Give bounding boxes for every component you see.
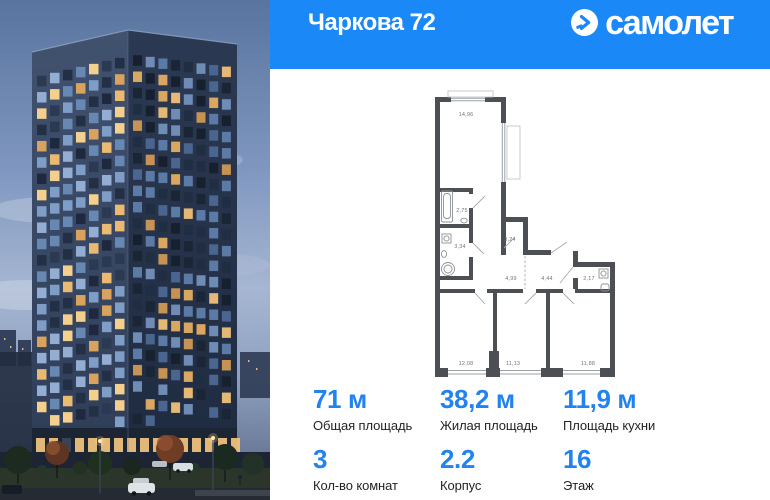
facade-window xyxy=(37,304,47,315)
facade-window xyxy=(133,120,142,131)
facade-window xyxy=(89,211,99,222)
facade-window xyxy=(37,320,47,331)
facade-window xyxy=(133,381,142,392)
card-header: Чаркова 72 самолет xyxy=(270,0,770,69)
facade-window xyxy=(50,171,60,182)
stat-living-area: 38,2 м Жилая площадь xyxy=(440,386,566,433)
facade-window xyxy=(158,368,167,379)
facade-window xyxy=(63,363,73,374)
facade-window xyxy=(115,74,125,85)
facade-window xyxy=(102,126,112,136)
building-photo-svg xyxy=(0,0,270,500)
facade-window xyxy=(115,417,125,428)
room-area-label: 4,44 xyxy=(541,276,553,282)
facade-window xyxy=(50,301,60,312)
facade-window xyxy=(133,316,142,327)
facade-window xyxy=(133,55,142,66)
facade-window xyxy=(76,328,86,339)
facade-window xyxy=(197,161,206,172)
facade-window xyxy=(158,270,167,281)
facade-window xyxy=(171,305,180,316)
facade-window xyxy=(63,200,73,211)
facade-window xyxy=(158,319,167,330)
facade-window xyxy=(102,322,112,333)
facade-window xyxy=(133,332,142,343)
facade-window xyxy=(50,105,60,116)
project-title: Чаркова 72 xyxy=(308,9,435,37)
facade-window xyxy=(50,366,60,377)
facade-window xyxy=(76,262,86,273)
facade-window xyxy=(115,172,125,183)
facade-window xyxy=(146,269,155,280)
facade-window xyxy=(184,339,193,350)
facade-window xyxy=(76,311,86,322)
facade-window xyxy=(209,407,218,418)
facade-window xyxy=(209,261,218,272)
facade-window xyxy=(76,83,86,94)
facade-window xyxy=(184,306,193,317)
facade-window xyxy=(209,309,218,320)
facade-window xyxy=(222,246,231,257)
facade-window xyxy=(50,73,60,84)
facade-window xyxy=(63,347,73,358)
facade-window xyxy=(209,293,218,304)
facade-window xyxy=(75,438,84,454)
stat-label: Кол-во комнат xyxy=(313,478,439,493)
facade-window xyxy=(76,148,86,159)
facade-window xyxy=(171,142,180,153)
facade-window xyxy=(76,116,86,127)
facade-window xyxy=(146,187,155,198)
facade-window xyxy=(50,187,60,198)
facade-window xyxy=(114,438,123,454)
facade-window xyxy=(222,360,231,371)
facade-window xyxy=(222,295,231,306)
facade-window xyxy=(184,62,193,73)
facade-window xyxy=(197,324,206,335)
facade-window xyxy=(197,96,206,107)
facade-window xyxy=(222,409,231,420)
facade-window xyxy=(102,354,112,365)
facade-window xyxy=(115,188,125,199)
facade-window xyxy=(158,58,167,69)
facade-window xyxy=(37,288,47,299)
facade-window xyxy=(222,67,231,78)
facade-window xyxy=(102,224,112,235)
facade-window xyxy=(50,415,60,426)
stat-label: Этаж xyxy=(563,478,689,493)
facade-window xyxy=(50,268,60,279)
facade-window xyxy=(192,438,201,454)
facade-window xyxy=(158,189,167,200)
facade-window xyxy=(63,298,73,309)
facade-window xyxy=(102,240,112,251)
facade-window xyxy=(171,93,180,104)
facade-window xyxy=(171,272,180,283)
facade-window xyxy=(76,377,86,388)
facade-window xyxy=(158,107,167,118)
facade-window xyxy=(133,300,142,311)
facade-window xyxy=(63,70,73,81)
facade-window xyxy=(197,194,206,205)
facade-window xyxy=(37,92,47,103)
facade-window xyxy=(171,321,180,332)
facade-window xyxy=(222,278,231,289)
facade-window xyxy=(50,285,60,296)
facade-window xyxy=(184,355,193,366)
balcony-outline xyxy=(448,91,493,97)
facade-window xyxy=(222,148,231,159)
facade-window xyxy=(102,208,112,219)
facade-window xyxy=(102,159,112,170)
facade-window xyxy=(146,106,155,117)
facade-window xyxy=(158,303,167,314)
room-area-label: 3,34 xyxy=(454,244,466,250)
facade-window xyxy=(158,352,167,363)
facade-window xyxy=(89,406,99,417)
facade-window xyxy=(158,238,167,249)
facade-window xyxy=(146,122,155,132)
facade-window xyxy=(115,205,125,216)
facade-window xyxy=(115,221,125,232)
facade-window xyxy=(63,102,73,113)
facade-window xyxy=(209,358,218,369)
facade-window xyxy=(115,91,125,102)
facade-window xyxy=(184,225,193,236)
facade-window xyxy=(184,323,193,334)
listing-card[interactable]: Чаркова 72 самолет xyxy=(0,0,770,500)
facade-window xyxy=(63,314,73,325)
facade-window xyxy=(222,311,231,322)
facade-window xyxy=(171,386,180,397)
facade-window xyxy=(222,164,231,175)
facade-window xyxy=(102,191,112,202)
facade-window xyxy=(37,255,47,266)
facade-window xyxy=(197,112,206,123)
facade-window xyxy=(37,402,47,413)
facade-window xyxy=(63,217,73,228)
room-area-label: 12,08 xyxy=(459,361,474,367)
facade-window xyxy=(50,138,60,149)
facade-window xyxy=(133,202,142,213)
facade-window xyxy=(146,57,155,68)
facade-window xyxy=(197,357,206,368)
facade-window xyxy=(115,139,125,150)
facade-window xyxy=(146,155,155,166)
room-area-label: 4,99 xyxy=(505,276,517,282)
facade-window xyxy=(50,252,60,263)
facade-window xyxy=(115,237,125,248)
facade-window xyxy=(146,89,155,100)
facade-window xyxy=(197,226,206,237)
facade-window xyxy=(171,60,180,71)
facade-window xyxy=(184,78,193,89)
facade-window xyxy=(63,249,73,260)
facade-window xyxy=(222,393,231,404)
facade-window xyxy=(115,351,125,362)
facade-window xyxy=(158,384,167,395)
facade-window xyxy=(115,384,125,395)
facade-window xyxy=(76,165,86,176)
stat-value: 16 xyxy=(563,446,689,473)
facade-window xyxy=(133,414,142,425)
facade-window xyxy=(146,285,155,296)
facade-window xyxy=(102,387,112,398)
stat-value: 38,2 м xyxy=(440,386,566,413)
facade-window xyxy=(209,391,218,402)
facade-window xyxy=(209,342,218,353)
facade-window xyxy=(115,270,125,281)
facade-window xyxy=(76,295,86,306)
facade-window xyxy=(50,89,60,100)
facade-window xyxy=(158,205,167,216)
facade-window xyxy=(222,262,231,273)
facade-window xyxy=(102,93,112,104)
facade-window xyxy=(89,194,99,205)
facade-window xyxy=(115,156,125,167)
facade-window xyxy=(146,367,155,378)
facade-window xyxy=(197,308,206,319)
facade-window xyxy=(133,218,142,229)
facade-window xyxy=(63,119,73,130)
facade-window xyxy=(209,146,218,157)
facade-window xyxy=(76,214,86,225)
facade-window xyxy=(50,350,60,361)
facade-window xyxy=(158,91,167,102)
facade-window xyxy=(37,239,47,250)
facade-window xyxy=(76,197,86,208)
stat-value: 71 м xyxy=(313,386,439,413)
facade-window xyxy=(184,404,193,415)
facade-window xyxy=(184,290,193,301)
facade-window xyxy=(89,292,99,303)
facade-window xyxy=(209,212,218,223)
facade-window xyxy=(184,111,193,122)
facade-window xyxy=(209,179,218,190)
facade-window xyxy=(37,76,47,87)
facade-window xyxy=(63,86,73,97)
facade-window xyxy=(146,138,155,149)
facade-window xyxy=(89,390,99,401)
room-area-label: 11,88 xyxy=(581,361,595,367)
facade-window xyxy=(184,94,193,105)
facade-window xyxy=(133,267,142,278)
facade-window xyxy=(146,350,155,361)
facade-window xyxy=(184,257,193,268)
facade-window xyxy=(63,282,73,293)
facade-window xyxy=(158,140,167,151)
facade-window xyxy=(133,72,142,83)
facade-window xyxy=(222,115,231,126)
facade-window xyxy=(133,349,142,360)
facade-window xyxy=(184,274,193,285)
facade-window xyxy=(171,174,180,185)
stat-value: 11,9 м xyxy=(563,386,689,413)
facade-window xyxy=(37,206,47,217)
facade-window xyxy=(171,109,180,120)
stat-value: 3 xyxy=(313,446,439,473)
stat-label: Жилая площадь xyxy=(440,418,566,433)
stat-rooms-count: 3 Кол-во комнат xyxy=(313,446,439,493)
facade-window xyxy=(102,110,112,121)
facade-window xyxy=(102,305,112,316)
tower xyxy=(32,30,240,462)
facade-window xyxy=(50,122,60,133)
facade-window xyxy=(184,160,193,171)
facade-window xyxy=(76,393,86,404)
facade-window xyxy=(37,337,47,348)
facade-window xyxy=(209,195,218,206)
facade-window xyxy=(89,129,99,140)
room-area-label: 11,13 xyxy=(506,361,520,367)
facade-window xyxy=(197,292,206,303)
facade-window xyxy=(89,178,99,189)
facade-window xyxy=(158,173,167,184)
facade-window xyxy=(158,124,167,135)
facade-window xyxy=(89,308,99,319)
facade-window xyxy=(115,302,125,313)
facade-window xyxy=(184,127,193,137)
facade-window xyxy=(209,130,218,141)
facade-window xyxy=(209,375,218,386)
facade-window xyxy=(171,190,180,201)
facade-window xyxy=(102,289,112,300)
facade-window xyxy=(89,80,99,91)
facade-window xyxy=(209,228,218,239)
facade-window xyxy=(222,230,231,241)
facade-window xyxy=(171,402,180,413)
floorplan-walls xyxy=(435,97,615,377)
facade-window xyxy=(63,168,73,179)
facade-window xyxy=(222,344,231,355)
facade-window xyxy=(146,399,155,410)
facade-window xyxy=(37,385,47,396)
facade-window xyxy=(197,80,206,91)
facade-window xyxy=(184,371,193,382)
facade-window xyxy=(158,75,167,86)
facade-window xyxy=(158,336,167,347)
stat-label: Площадь кухни xyxy=(563,418,689,433)
stat-building-number: 2.2 Корпус xyxy=(440,446,566,493)
facade-window xyxy=(102,338,112,349)
facade-window xyxy=(197,373,206,384)
facade-window xyxy=(140,438,149,454)
facade-window xyxy=(158,287,167,298)
facade-window xyxy=(171,256,180,267)
facade-window xyxy=(76,344,86,355)
facade-window xyxy=(37,174,47,185)
facade-window xyxy=(50,154,60,165)
facade-window xyxy=(36,438,45,454)
facade-window xyxy=(146,204,155,215)
brand-wordmark: самолет xyxy=(605,6,733,40)
facade-window xyxy=(133,153,142,164)
facade-window xyxy=(102,371,112,382)
facade-window xyxy=(89,243,99,254)
facade-window xyxy=(171,125,180,136)
facade-window xyxy=(50,334,60,345)
facade-window xyxy=(184,388,193,399)
facade-window xyxy=(102,77,112,88)
facade-window xyxy=(89,259,99,270)
facade-window xyxy=(197,210,206,221)
facade-window xyxy=(63,151,73,162)
facade-window xyxy=(222,376,231,387)
info-panel: Чаркова 72 самолет xyxy=(270,0,770,500)
balcony-outline xyxy=(507,126,520,179)
facade-window xyxy=(76,360,86,371)
facade-window xyxy=(197,259,206,270)
facade-window xyxy=(171,207,180,218)
facade-window xyxy=(209,326,218,337)
facade-window xyxy=(209,81,218,92)
facade-window xyxy=(146,220,155,231)
facade-window xyxy=(63,331,73,342)
facade-window xyxy=(115,368,125,379)
facade-window xyxy=(146,318,155,329)
facade-window xyxy=(197,275,206,286)
facade-window xyxy=(37,108,47,119)
facade-window xyxy=(184,192,193,203)
facade-window xyxy=(50,399,60,410)
facade-window xyxy=(197,177,206,188)
facade-window xyxy=(209,65,218,76)
facade-window xyxy=(146,236,155,247)
facade-window xyxy=(37,353,47,364)
room-area-label: 2,75 xyxy=(456,208,468,214)
facade-window xyxy=(115,335,125,346)
room-area-label: 3,24 xyxy=(504,237,516,243)
facade-window xyxy=(171,158,180,169)
stat-value: 2.2 xyxy=(440,446,566,473)
facade-window xyxy=(171,76,180,87)
facade-window xyxy=(209,98,218,109)
facade-window xyxy=(115,123,125,134)
facade-window xyxy=(222,132,231,143)
facade-window xyxy=(37,369,47,380)
facade-window xyxy=(197,63,206,74)
facade-window xyxy=(133,186,142,197)
facade-window xyxy=(133,88,142,99)
facade-window xyxy=(102,142,112,153)
facade-window xyxy=(133,235,142,246)
facade-window xyxy=(171,353,180,364)
facade-window xyxy=(197,389,206,400)
facade-window xyxy=(115,107,125,118)
facade-window xyxy=(209,277,218,288)
facade-window xyxy=(50,203,60,214)
facade-window xyxy=(102,273,112,284)
facade-window xyxy=(37,157,47,168)
floorplan: 14,962,753,343,244,994,442,1712,0811,131… xyxy=(428,88,618,383)
facade-window xyxy=(63,412,73,423)
facade-window xyxy=(89,162,99,173)
facade-window xyxy=(133,104,142,115)
facade-window xyxy=(89,325,99,336)
facade-window xyxy=(222,99,231,110)
facade-window xyxy=(222,327,231,338)
facade-window xyxy=(89,374,99,385)
facade-window xyxy=(115,319,125,330)
facade-window xyxy=(89,145,99,156)
facade-window xyxy=(133,398,142,409)
room-area-label: 2,17 xyxy=(583,276,595,282)
facade-window xyxy=(63,184,73,195)
facade-window xyxy=(197,243,206,254)
facade-window xyxy=(146,171,155,182)
facade-window xyxy=(76,181,86,192)
facade-window xyxy=(50,219,60,230)
